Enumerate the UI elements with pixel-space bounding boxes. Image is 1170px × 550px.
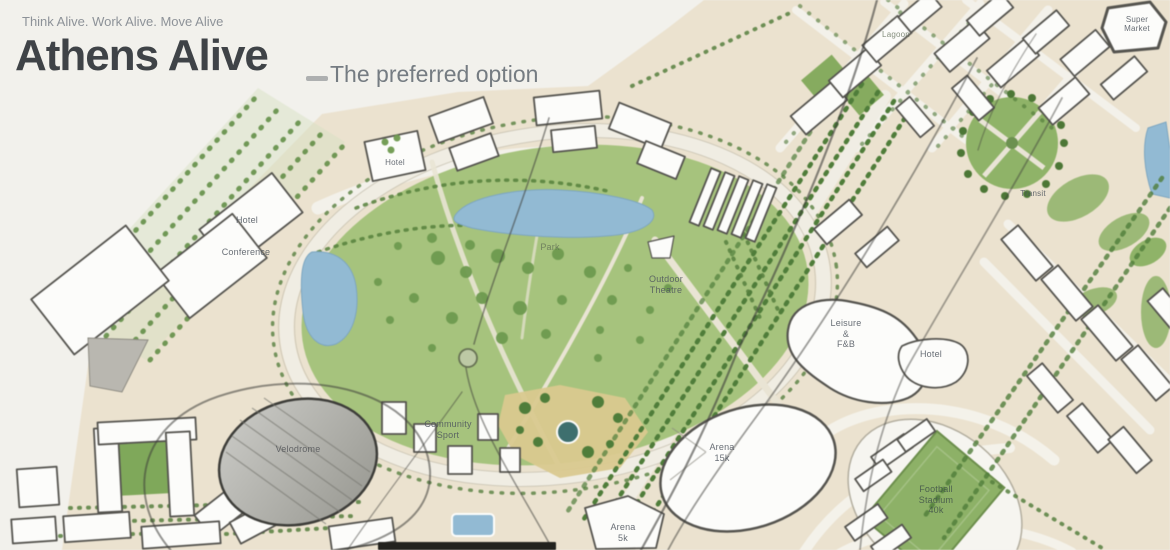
plan-tagline: Think Alive. Work Alive. Move Alive bbox=[22, 14, 223, 29]
label-velodrome: Velodrome bbox=[252, 444, 344, 455]
label-park: Park bbox=[520, 242, 580, 253]
label-outdoor-theatre: Outdoor Theatre bbox=[630, 274, 702, 295]
label-hotel-nw: Hotel bbox=[212, 215, 282, 226]
label-football-stadium: Football Stadium 40k bbox=[896, 484, 976, 516]
label-conference: Conference bbox=[196, 247, 296, 258]
plan-title: Athens Alive bbox=[15, 31, 268, 81]
label-hotel-east: Hotel bbox=[906, 349, 956, 360]
label-arena-5k: Arena 5k bbox=[598, 522, 648, 543]
map-labels: Hotel Conference Hotel Park Outdoor Thea… bbox=[0, 0, 1170, 550]
label-lagoon: Lagoon bbox=[868, 30, 924, 39]
label-leisure-fb: Leisure & F&B bbox=[818, 318, 874, 350]
label-transit: Transit bbox=[1006, 189, 1060, 198]
scan-smudge bbox=[306, 76, 328, 81]
masterplan-scan: Hotel Conference Hotel Park Outdoor Thea… bbox=[0, 0, 1170, 550]
label-community-sport: Community Sport bbox=[408, 419, 488, 440]
label-super-market: Super Market bbox=[1114, 15, 1160, 34]
label-hotel-park-edge: Hotel bbox=[370, 158, 420, 167]
label-arena-15k: Arena 15k bbox=[692, 442, 752, 463]
plan-subtitle: The preferred option bbox=[330, 61, 538, 88]
